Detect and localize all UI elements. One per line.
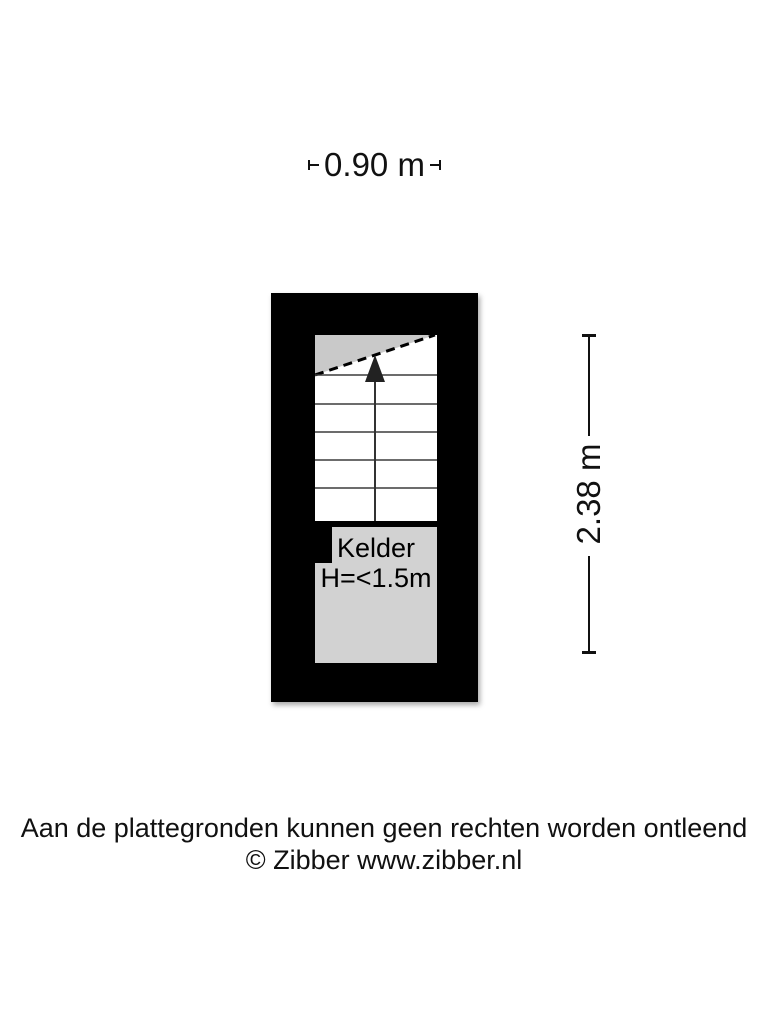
dimension-tick-left-icon (308, 160, 319, 170)
floorplan: Kelder H=<1.5m (271, 293, 478, 702)
dimension-line-top (588, 336, 590, 436)
room-name: Kelder (315, 533, 437, 563)
room-kelder: Kelder H=<1.5m (315, 527, 437, 663)
height-dimension: 2.38 m (582, 334, 596, 654)
room-label: Kelder H=<1.5m (315, 533, 437, 593)
dimension-cap-bottom-icon (582, 651, 596, 654)
room-height-note: H=<1.5m (315, 563, 437, 593)
dimension-line-bottom (588, 556, 590, 652)
staircase (315, 335, 437, 521)
width-dimension: 0.90 m (271, 143, 478, 187)
floorplan-interior: Kelder H=<1.5m (315, 335, 437, 663)
height-dimension-label: 2.38 m (570, 444, 608, 545)
disclaimer: Aan de plattegronden kunnen geen rechten… (0, 812, 768, 876)
copyright-text: © Zibber www.zibber.nl (0, 844, 768, 876)
floorplan-page: 0.90 m (0, 0, 768, 1024)
staircase-drawing (315, 335, 437, 521)
disclaimer-text: Aan de plattegronden kunnen geen rechten… (0, 812, 768, 844)
stair-direction-arrow-icon (365, 355, 385, 382)
width-dimension-label: 0.90 m (324, 146, 425, 184)
dimension-tick-right-icon (430, 160, 441, 170)
